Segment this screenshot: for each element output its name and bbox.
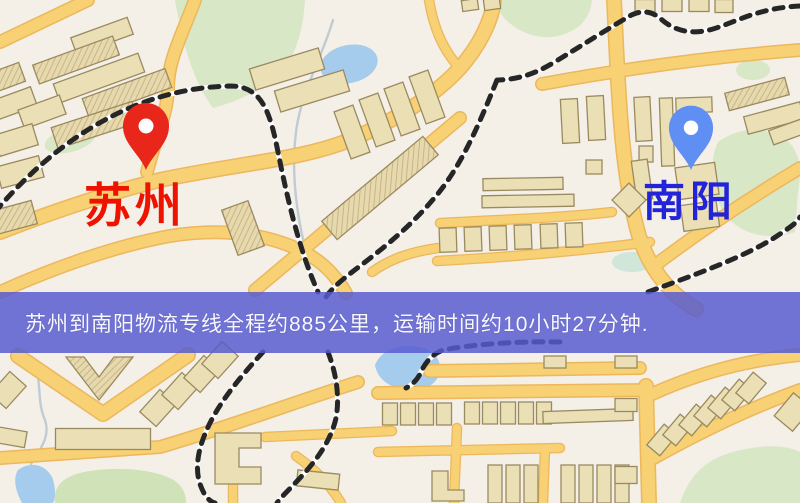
map-canvas: 苏州 南阳 [0, 0, 800, 503]
route-summary-text: 苏州到南阳物流专线全程约885公里，运输时间约10小时27分钟. [25, 308, 649, 338]
destination-city-label: 南阳 [643, 179, 737, 226]
logistics-map-screenshot: 苏州 南阳 苏州到南阳物流专线全程约885公里，运输时间约10小时27分钟. [0, 0, 800, 503]
origin-city-label: 苏州 [84, 181, 186, 233]
route-summary-banner: 苏州到南阳物流专线全程约885公里，运输时间约10小时27分钟. [0, 292, 800, 353]
